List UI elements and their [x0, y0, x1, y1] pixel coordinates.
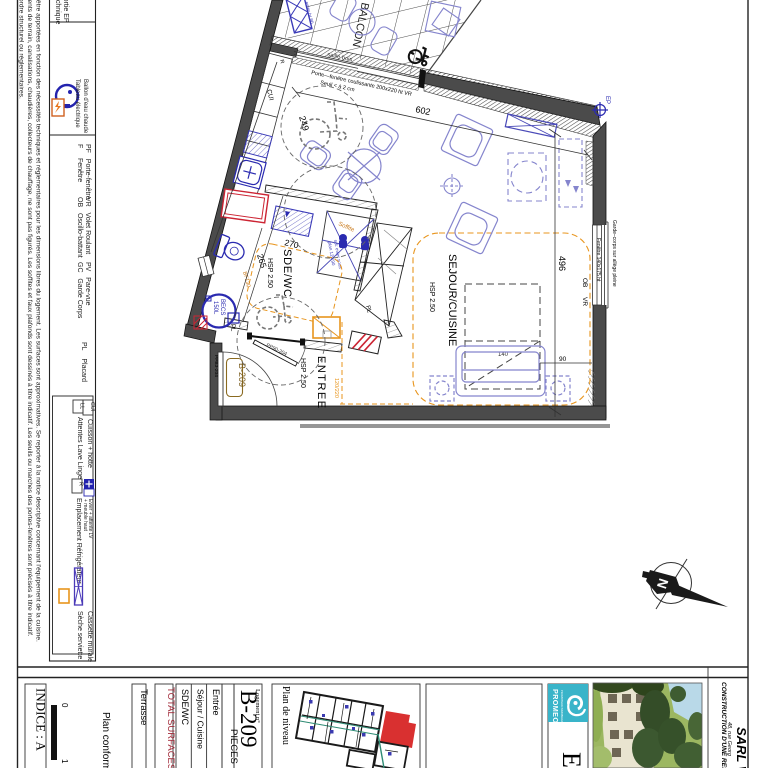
svg-text:TOTAL SURFACES HAB: TOTAL SURFACES HAB: [165, 687, 176, 768]
svg-text:Emplacement Réfrigérateur: Emplacement Réfrigérateur: [75, 498, 82, 584]
svg-text:1: 1: [60, 759, 69, 764]
svg-text:technique: technique: [54, 0, 61, 24]
svg-text:Séjour / Cuisine: Séjour / Cuisine: [196, 689, 206, 749]
svg-text:Cassette murale: Cassette murale: [86, 611, 93, 662]
svg-text:B-209: B-209: [237, 363, 247, 387]
svg-text:OB: OB: [581, 278, 588, 287]
svg-text:PROMOTEUR IMMOBILIER: PROMOTEUR IMMOBILIER: [560, 690, 564, 723]
svg-text:SARL V: SARL V: [734, 727, 749, 768]
svg-text:SDE/WC: SDE/WC: [180, 689, 190, 726]
svg-text:PL Placard: PL Placard: [80, 342, 87, 382]
svg-text:Plan conforme au permis: Plan conforme au permis: [100, 712, 111, 768]
svg-text:Terrasse: Terrasse: [138, 689, 149, 725]
svg-text:B-209: B-209: [236, 690, 261, 748]
svg-text:PPB3-204: PPB3-204: [213, 355, 219, 377]
svg-text:Entrée: Entrée: [211, 689, 221, 716]
svg-text:F Fenêtre: F Fenêtre: [76, 144, 83, 182]
svg-text:BECS: BECS: [219, 299, 225, 315]
svg-text:Sèche serviette: Sèche serviette: [76, 611, 83, 659]
svg-text:d'être apportées en fonction d: d'être apportées en fonction des nécessi…: [35, 0, 42, 642]
svg-text:Garde–corps sur allège plei: Garde–corps sur allège pleine: [611, 220, 617, 287]
svg-text:90: 90: [559, 356, 567, 363]
svg-text:SEJOUR/CUISINE: SEJOUR/CUISINE: [446, 254, 458, 346]
svg-text:PF Porte-fenêtre: PF Porte-fenêtre: [84, 144, 91, 200]
svg-text:496: 496: [557, 256, 567, 271]
svg-text:PL: PL: [229, 324, 235, 332]
svg-text:INDICE : A: INDICE : A: [34, 688, 49, 751]
svg-text:SDE/WC: SDE/WC: [281, 249, 293, 298]
svg-text:48, rue Georg: 48, rue Georg: [726, 722, 732, 757]
svg-text:E: E: [557, 752, 586, 768]
svg-text:Cuisson + hotte: Cuisson + hotte: [86, 419, 93, 468]
svg-text:Attentes Lave Linge: Attentes Lave Linge: [76, 417, 83, 479]
svg-text:140: 140: [498, 352, 509, 358]
svg-text:VR Volet Roulant: VR Volet Roulant: [84, 197, 91, 254]
svg-text:ments de terrain, canalisation: ments de terrain, canalisations, chaudiè…: [26, 0, 33, 637]
svg-text:ordre structurel ou réglementa: ordre structurel ou réglementaires.: [18, 0, 25, 99]
svg-text:LL: LL: [79, 403, 85, 409]
svg-text:150L: 150L: [212, 301, 218, 315]
svg-text:OB Oscillo-battant: OB Oscillo-battant: [76, 197, 83, 258]
svg-text:Ballon d'eau chaude: Ballon d'eau chaude: [82, 79, 88, 134]
svg-text:GC Garde Corps: GC Garde Corps: [76, 262, 83, 319]
svg-text:PV Pare-vue: PV Pare-vue: [84, 262, 91, 306]
svg-text:CONSTRUCTION D'UNE RESIDEN: CONSTRUCTION D'UNE RESIDEN: [720, 682, 727, 768]
svg-text:HSP 2.50: HSP 2.50: [299, 358, 306, 388]
svg-text:VR: VR: [581, 297, 588, 306]
svg-text:Plan de niveau: Plan de niveau: [280, 686, 291, 745]
svg-text:0: 0: [60, 703, 69, 708]
svg-text:PROMEO: PROMEO: [551, 689, 560, 723]
svg-text:EP: EP: [604, 96, 610, 104]
svg-text:Tableau électrique: Tableau électrique: [74, 79, 80, 128]
svg-text:ENTREE: ENTREE: [315, 356, 327, 410]
svg-text:Fenêtre 140x175 ht: Fenêtre 140x175 ht: [595, 238, 601, 282]
svg-text:120/220: 120/220: [333, 378, 339, 398]
svg-text:Sortie EP: Sortie EP: [62, 0, 69, 23]
svg-text:HSP 2.50: HSP 2.50: [428, 282, 435, 312]
svg-text:CUI: CUI: [89, 402, 95, 411]
svg-text:R: R: [78, 482, 84, 486]
